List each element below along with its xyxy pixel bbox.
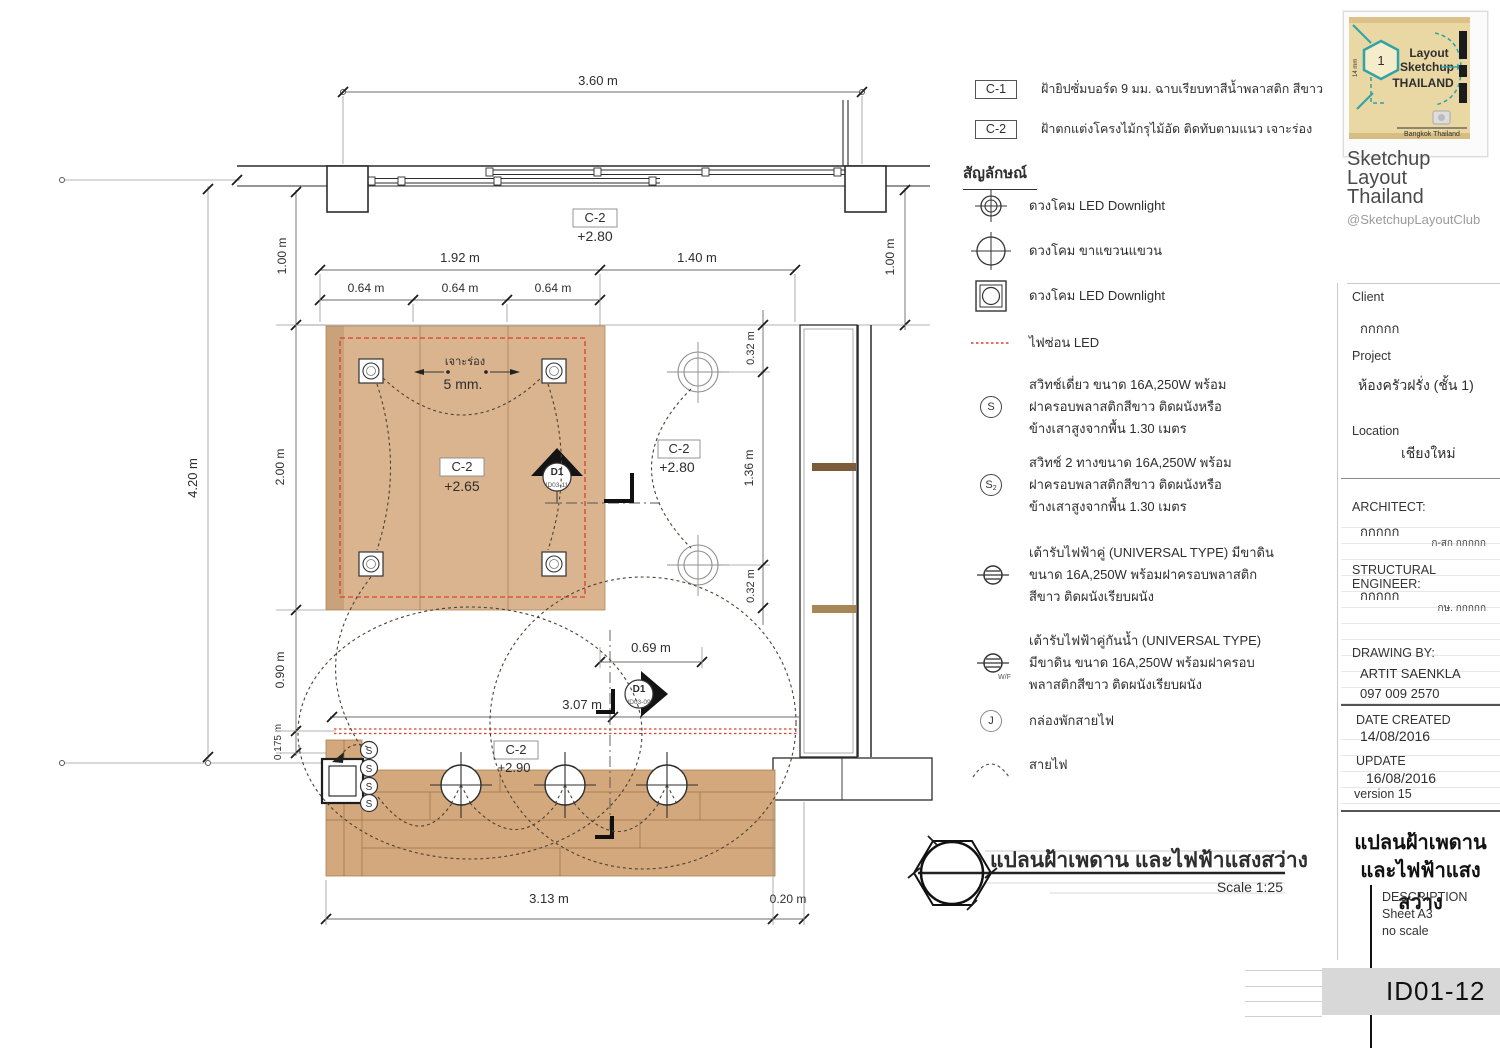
dim-one-right: 1.00 m	[883, 239, 897, 276]
ceiling-tag-top: C-2 +2.80	[573, 209, 617, 244]
brand-card[interactable]: 1 Layout Sketchup THAILAND Bangkok Thail…	[1343, 11, 1488, 157]
architect-label: ARCHITECT:	[1352, 500, 1426, 514]
brand-name[interactable]: Sketchup Layout Thailand	[1347, 150, 1430, 207]
drawing-sheet: 3.60 m 4.20 m	[0, 0, 1500, 1061]
legend-item: S2 สวิทช์ 2 ทางขนาด 16A,250W พร้อม ฝาครอ…	[963, 450, 1353, 520]
switch-two-way-icon: S2	[963, 474, 1019, 496]
junction-box-icon: J	[963, 710, 1019, 732]
junction-box	[322, 759, 363, 803]
pendant-lamp	[667, 342, 729, 403]
svg-text:C-2: C-2	[506, 742, 527, 757]
date-created-value: 14/08/2016	[1360, 728, 1430, 744]
downlight-recessed-icon	[963, 188, 1019, 224]
legend-label: ไฟซ่อน LED	[1029, 332, 1099, 354]
legend-label: สวิทช์ 2 ทางขนาด 16A,250W พร้อม ฝาครอบพล…	[1029, 452, 1232, 518]
recessed-downlight	[542, 552, 566, 576]
finish-row-c2: C-2 ฝ้าตกแต่งโครงไม้กรุไม้อัด ติดทับตามแ…	[975, 119, 1312, 139]
legend-panel: C-1 ฝ้ายิปซั่มบอร์ด 9 มม. ฉาบเรียบทาสีน้…	[956, 70, 1356, 810]
recessed-downlight	[359, 359, 383, 383]
receptacle-waterproof-icon: W/F	[963, 651, 1019, 675]
date-created-label: DATE CREATED	[1356, 713, 1451, 727]
svg-text:S: S	[366, 746, 373, 757]
section-marker-d1-bottom: D1 ID03-09	[596, 671, 668, 717]
brand-logo-image: 1 Layout Sketchup THAILAND Bangkok Thail…	[1349, 17, 1470, 139]
dim-right-a: 0.32 m	[745, 331, 757, 365]
legend-item: ดวงโคม LED Downlight	[963, 278, 1353, 314]
location-label: Location	[1352, 424, 1399, 438]
dim-right-b: 1.36 m	[742, 450, 756, 487]
svg-text:S: S	[366, 764, 373, 775]
legend-item: ดวงโคม LED Downlight	[963, 188, 1353, 224]
dim-sub-2: 0.64 m	[442, 281, 479, 295]
ceiling-tag-wood: C-2 +2.65	[440, 458, 484, 494]
island-dimension: 0.69 m	[595, 640, 707, 668]
sidebar-separator	[1337, 283, 1338, 960]
recessed-downlight	[542, 359, 566, 383]
legend-item: ไฟซ่อน LED	[963, 328, 1353, 358]
dim-one-left: 1.00 m	[275, 238, 289, 275]
ceiling-tag-level: +2.80	[577, 228, 613, 244]
project-value: ห้องครัวฝรั่ง (ชั้น 1)	[1358, 375, 1474, 397]
top-dimension: 3.60 m	[338, 73, 867, 166]
legend-item: เต้ารับไฟฟ้าคู่ (UNIVERSAL TYPE) มีขาดิน…	[963, 540, 1353, 610]
svg-text:S: S	[366, 799, 373, 810]
update-value: 16/08/2016	[1366, 770, 1436, 786]
client-label: Client	[1352, 290, 1384, 304]
client-value: กกกกก	[1360, 318, 1399, 339]
svg-text:14 mm: 14 mm	[1353, 59, 1359, 77]
dim-ledge: 0.175 m	[273, 724, 284, 760]
column-right	[845, 166, 886, 212]
recessed-downlight	[359, 552, 383, 576]
left-grid-dimension: 4.20 m	[60, 175, 333, 766]
receptacle-duplex-icon	[963, 563, 1019, 587]
downlight-square-icon	[963, 278, 1019, 314]
finish-code-box: C-2	[975, 120, 1017, 139]
finish-row-c1: C-1 ฝ้ายิปซั่มบอร์ด 9 มม. ฉาบเรียบทาสีน้…	[975, 79, 1323, 99]
svg-text:ID03-11: ID03-11	[546, 482, 569, 489]
legend-label: เต้ารับไฟฟ้าคู่กันน้ำ (UNIVERSAL TYPE) ม…	[1029, 630, 1261, 696]
column-left	[327, 166, 368, 212]
title-block-rule	[1370, 885, 1372, 1048]
dim-open-depth: 0.90 m	[273, 652, 287, 689]
finish-desc: ฝ้าตกแต่งโครงไม้กรุไม้อัด ติดทับตามแนว เ…	[1041, 119, 1312, 139]
version-value: version 15	[1354, 787, 1412, 801]
dimension-rows: 1.92 m 1.40 m 0.64 m 0.64 m 0.64 m	[315, 250, 800, 326]
legend-item: ดวงโคม ขาแขวนแขวน	[963, 233, 1353, 269]
legend-label: กล่องพักสายไฟ	[1029, 710, 1114, 732]
legend-item: สายไฟ	[963, 748, 1353, 782]
svg-text:ID03-09: ID03-09	[627, 699, 651, 706]
cabinet-shelf	[812, 605, 856, 613]
plan-title-block: แปลนฝ้าเพดาน และไฟฟ้าแสงสว่าง Scale 1:25	[908, 836, 1308, 910]
svg-text:Bangkok Thailand: Bangkok Thailand	[1404, 131, 1460, 138]
legend-label: เต้ารับไฟฟ้าคู่ (UNIVERSAL TYPE) มีขาดิน…	[1029, 542, 1274, 608]
dim-bottom-b: 0.20 m	[770, 892, 807, 906]
right-dimension-chain: 0.32 m 1.36 m 0.32 m	[742, 310, 768, 625]
ceiling-tag-code: C-2	[585, 210, 606, 225]
svg-text:S: S	[366, 782, 373, 793]
drawing-by-phone: 097 009 2570	[1360, 686, 1440, 701]
dim-top-width: 3.60 m	[578, 73, 618, 88]
legend-label: ดวงโคม ขาแขวนแขวน	[1029, 240, 1162, 262]
finish-desc: ฝ้ายิปซั่มบอร์ด 9 มม. ฉาบเรียบทาสีน้ำพลา…	[1041, 79, 1323, 99]
svg-text:+2.90: +2.90	[498, 760, 531, 775]
legend-label: สวิทช์เดี่ยว ขนาด 16A,250W พร้อม ฝาครอบพ…	[1029, 374, 1226, 440]
architect-value: กกกกก	[1360, 521, 1399, 542]
svg-text:C-2: C-2	[669, 441, 690, 456]
dim-sub-1: 0.64 m	[348, 281, 385, 295]
legend-header: สัญลักษณ์	[963, 161, 1037, 190]
plan-scale: Scale 1:25	[1217, 879, 1283, 895]
dim-run: 3.07 m	[562, 697, 602, 712]
title-block-sidebar: 1 Layout Sketchup THAILAND Bangkok Thail…	[1341, 0, 1500, 1061]
sheet-id-band: ID01-12	[1322, 968, 1500, 1015]
switch-single-icon: S	[963, 396, 1019, 418]
pendant-lamp	[667, 535, 729, 596]
legend-label: ดวงโคม LED Downlight	[1029, 195, 1165, 217]
groove-name: เจาะร่อง	[445, 356, 485, 368]
sheet-note: Sheet A3	[1382, 907, 1433, 921]
legend-item: J กล่องพักสายไฟ	[963, 708, 1353, 734]
legend-item: S สวิทช์เดี่ยว ขนาด 16A,250W พร้อม ฝาครอ…	[963, 372, 1353, 442]
svg-text:+2.80: +2.80	[659, 459, 695, 475]
led-strip-icon	[963, 338, 1019, 348]
location-value: เชียงใหม่	[1401, 443, 1456, 465]
svg-text:1: 1	[1377, 53, 1384, 68]
dim-left-total: 4.20 m	[185, 458, 200, 498]
svg-text:+2.65: +2.65	[444, 478, 480, 494]
finish-code-box: C-1	[975, 80, 1017, 99]
groove-size: 5 mm.	[444, 376, 483, 392]
project-label: Project	[1352, 349, 1391, 363]
pendant-lamp-icon	[963, 231, 1019, 271]
engineer-note: กษ. กกกกก	[1438, 601, 1486, 616]
plan-title: แปลนฝ้าเพดาน และไฟฟ้าแสงสว่าง	[990, 847, 1308, 872]
legend-label: สายไฟ	[1029, 754, 1068, 776]
dim-right-c: 0.32 m	[745, 569, 757, 603]
dim-bottom-a: 3.13 m	[529, 891, 569, 906]
architect-note: ก-สก กกกกก	[1431, 536, 1486, 551]
svg-text:THAILAND: THAILAND	[1392, 76, 1454, 90]
drawing-by-name: ARTIT SAENKLA	[1360, 666, 1461, 681]
window-wall	[237, 166, 930, 212]
update-label: UPDATE	[1356, 754, 1406, 768]
dim-wood-depth: 2.00 m	[273, 449, 287, 486]
scale-note: no scale	[1382, 924, 1429, 938]
description-label: DESCRIPTION	[1382, 890, 1467, 904]
drawing-by-label: DRAWING BY:	[1352, 646, 1435, 660]
wire-arc-icon	[963, 751, 1019, 779]
cabinet-shelf	[812, 463, 856, 471]
legend-item: W/F เต้ารับไฟฟ้าคู่กันน้ำ (UNIVERSAL TYP…	[963, 628, 1353, 698]
dim-sub-3: 0.64 m	[535, 281, 572, 295]
tall-cabinet	[800, 325, 871, 757]
dim-span-a: 1.92 m	[440, 250, 480, 265]
run-dimension: 3.07 m	[327, 697, 800, 722]
right-top-dimension: 1.00 m	[883, 185, 910, 330]
counter-return	[773, 758, 932, 800]
dim-island: 0.69 m	[631, 640, 671, 655]
dim-span-b: 1.40 m	[677, 250, 717, 265]
legend-label: ดวงโคม LED Downlight	[1029, 285, 1165, 307]
engineer-value: กกกกก	[1360, 585, 1399, 606]
ceiling-tag-right: C-2 +2.80	[658, 440, 700, 475]
svg-text:C-2: C-2	[452, 459, 473, 474]
svg-text:Layout: Layout	[1409, 46, 1448, 60]
brand-handle[interactable]: @SketchupLayoutClub	[1347, 212, 1480, 227]
sheet-id: ID01-12	[1386, 976, 1486, 1007]
svg-text:D1: D1	[633, 684, 646, 695]
led-strip-line	[334, 729, 797, 734]
